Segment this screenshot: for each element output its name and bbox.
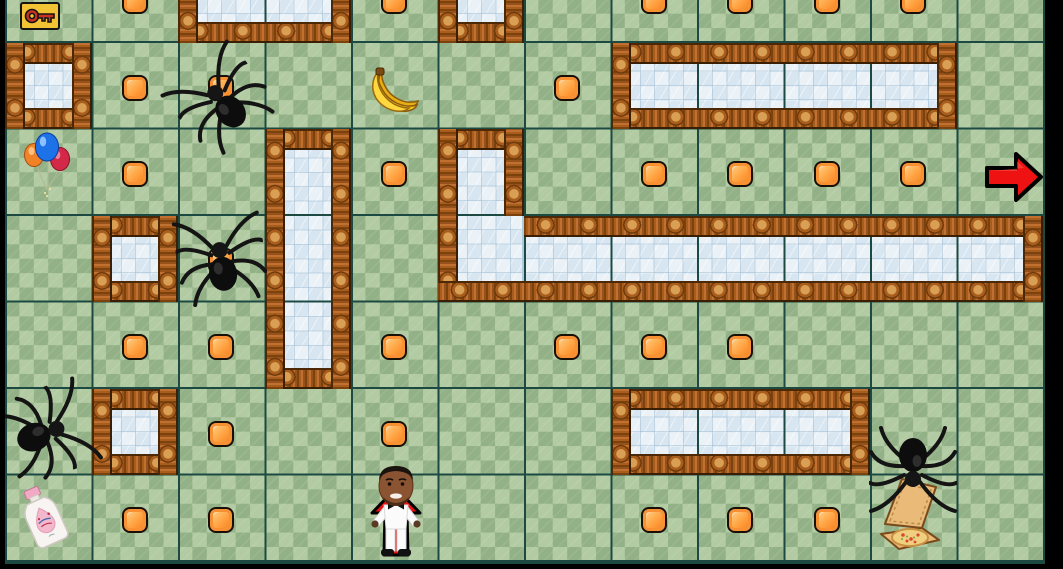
exit-arrow-icon: [984, 151, 1044, 203]
bananas-icon: [367, 66, 421, 116]
game-stage: [0, 0, 1063, 569]
fenced-ice-pen: [178, 0, 351, 43]
fence-left: [265, 129, 285, 389]
fenced-ice-pen: [5, 43, 92, 130]
fence-bottom: [178, 22, 351, 43]
fence-right: [158, 389, 178, 476]
fence-right: [850, 389, 870, 476]
coin-icon: [122, 0, 148, 14]
coin-icon: [641, 507, 667, 533]
coin-icon: [208, 421, 234, 447]
coin-icon: [208, 507, 234, 533]
fence-top: [611, 389, 871, 410]
key-icon: [24, 6, 56, 26]
coin-icon: [641, 161, 667, 187]
coin-icon: [727, 334, 753, 360]
fence-left: [5, 43, 25, 130]
fence-right: [1023, 216, 1043, 303]
fenced-ice-pen: [524, 216, 1043, 303]
fenced-ice-pen: [92, 216, 179, 303]
player-character[interactable]: [364, 463, 428, 559]
coin-icon: [727, 507, 753, 533]
coin-icon: [122, 334, 148, 360]
fence-bottom: [611, 454, 871, 475]
game-board[interactable]: [5, 0, 1045, 564]
hud-inventory-key: [20, 2, 60, 30]
fence-left: [92, 216, 112, 303]
fence-left: [438, 129, 458, 302]
spider-icon: [869, 424, 957, 516]
fence-bottom: [611, 108, 957, 129]
fenced-ice-pen: [611, 43, 957, 130]
coin-icon: [208, 75, 234, 101]
coin-icon: [381, 0, 407, 14]
fence-top: [611, 43, 957, 64]
fence-left: [611, 43, 631, 130]
coin-icon: [727, 161, 753, 187]
fenced-ice-pen: [92, 389, 179, 476]
coin-icon: [814, 161, 840, 187]
coin-icon: [727, 0, 753, 14]
fence-segment: [504, 129, 524, 216]
coin-icon: [814, 507, 840, 533]
balloons-icon: [23, 132, 73, 198]
fenced-ice-pen: [265, 129, 352, 389]
fence-right: [331, 0, 351, 43]
coin-icon: [208, 248, 234, 274]
fence-right: [937, 43, 957, 130]
fence-right: [504, 0, 524, 43]
coin-icon: [381, 161, 407, 187]
fence-left: [438, 0, 458, 43]
coin-icon: [122, 161, 148, 187]
coin-icon: [381, 334, 407, 360]
fenced-ice-pen: [438, 0, 525, 43]
coin-icon: [122, 507, 148, 533]
fence-top: [524, 216, 1043, 237]
coin-icon: [554, 334, 580, 360]
pizza-box-icon: [877, 476, 943, 560]
fence-right: [72, 43, 92, 130]
coin-icon: [381, 421, 407, 447]
coin-icon: [208, 334, 234, 360]
coin-icon: [900, 0, 926, 14]
fence-left: [611, 389, 631, 476]
fenced-ice-pen: [611, 389, 871, 476]
fence-bottom: [438, 281, 525, 302]
coin-icon: [641, 334, 667, 360]
fence-left: [92, 389, 112, 476]
coin-icon: [554, 75, 580, 101]
coin-icon: [814, 0, 840, 14]
coin-icon: [122, 75, 148, 101]
baby-powder-icon: [14, 485, 74, 551]
fence-right: [158, 216, 178, 303]
grid: [5, 0, 1043, 562]
coin-icon: [641, 0, 667, 14]
fence-left: [178, 0, 198, 43]
fence-bottom: [524, 281, 1043, 302]
spider-icon: [171, 207, 271, 310]
coin-icon: [900, 161, 926, 187]
fence-right: [331, 129, 351, 389]
